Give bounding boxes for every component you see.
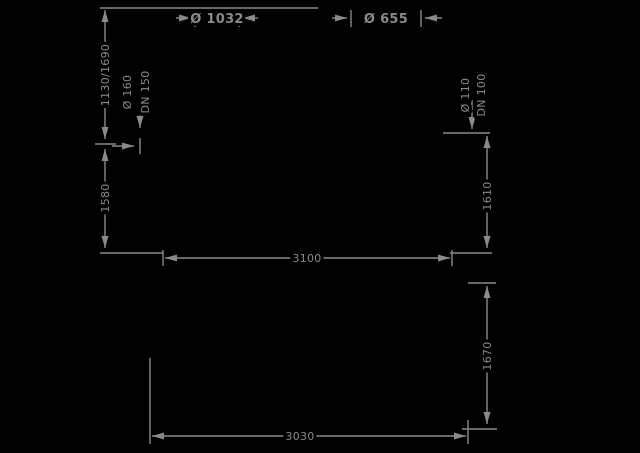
right-upper-height-label: 1610 [481,181,494,210]
left-tank-diameter-label: Ø 1032 [190,12,244,27]
left-connection-dn-label: DN 150 [139,71,152,114]
dimension-drawing-page: Ø 1032 Ø 655 1130/1690 1580 Ø 160 DN 150… [0,0,640,453]
right-connection-diameter-label: Ø 110 [459,78,472,113]
left-upper-height-label: 1130/1690 [99,44,112,106]
dimension-labels-group: Ø 1032 Ø 655 1130/1690 1580 Ø 160 DN 150… [99,12,494,443]
right-lower-height-label: 1670 [481,341,494,370]
overall-width-label: 3030 [285,430,314,443]
center-distance-label: 3100 [292,252,321,265]
tank-dimension-drawing: Ø 1032 Ø 655 1130/1690 1580 Ø 160 DN 150… [0,0,640,453]
left-lower-height-label: 1580 [99,183,112,212]
dimension-lines-group [95,8,497,444]
right-tank-diameter-label: Ø 655 [364,12,408,27]
right-connection-dn-label: DN 100 [475,74,488,117]
left-connection-diameter-label: Ø 160 [121,75,134,110]
